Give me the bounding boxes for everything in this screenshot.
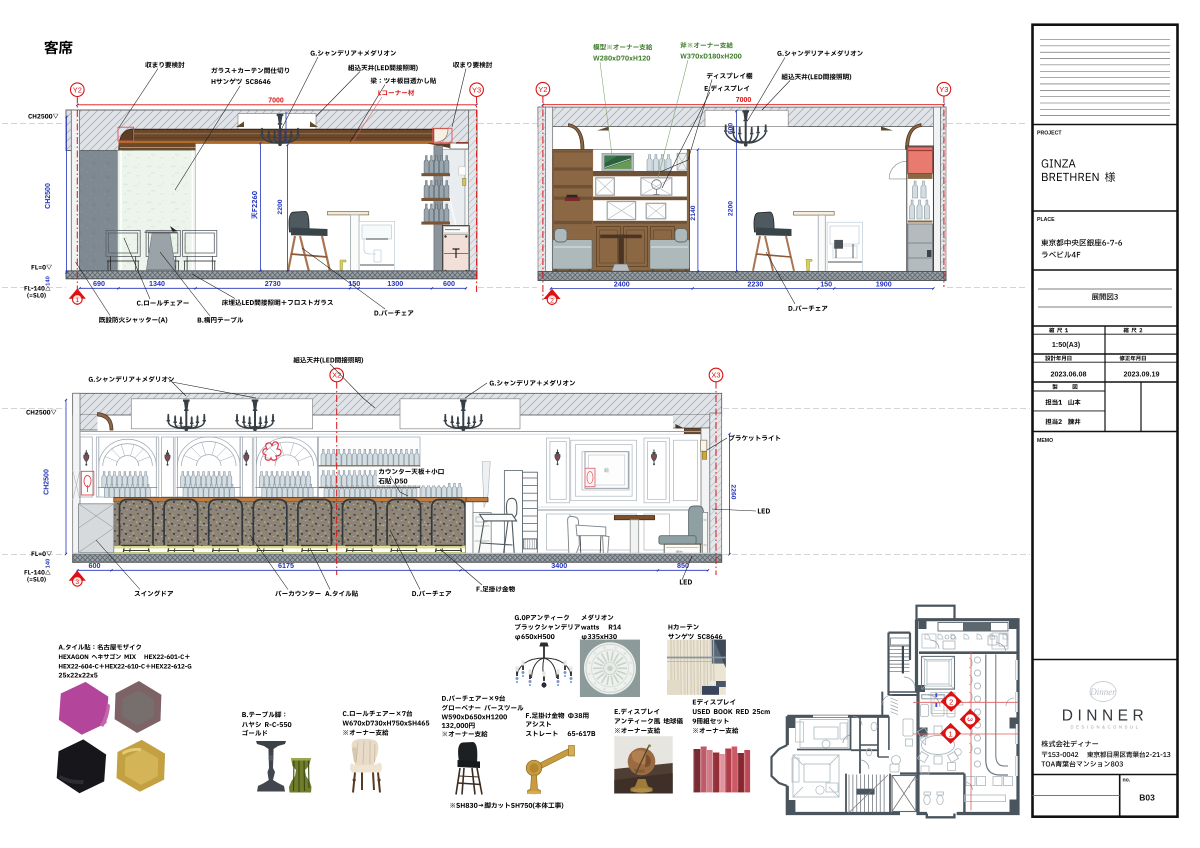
svg-text:3: 3 [965, 717, 974, 721]
svg-text:Y2: Y2 [73, 85, 82, 94]
svg-text:1: 1 [75, 297, 79, 304]
svg-text:1900: 1900 [876, 279, 892, 288]
svg-text:Y3: Y3 [472, 85, 481, 94]
svg-text:PROJECT: PROJECT [1037, 131, 1062, 137]
svg-text:Dinner: Dinner [1089, 687, 1116, 697]
svg-text:no.: no. [1123, 778, 1131, 784]
svg-text:600: 600 [89, 561, 101, 570]
svg-text:DINNER: DINNER [1062, 708, 1148, 725]
svg-text:7000: 7000 [736, 97, 752, 104]
svg-text:2: 2 [550, 297, 554, 304]
svg-text:Y3: Y3 [939, 85, 948, 94]
svg-text:600: 600 [277, 129, 284, 141]
svg-text:1:50(A3): 1:50(A3) [1052, 340, 1081, 349]
svg-text:2023.06.08: 2023.06.08 [1051, 370, 1087, 379]
svg-text:3400: 3400 [551, 561, 567, 570]
svg-text:2260: 2260 [729, 484, 736, 499]
svg-text:1340: 1340 [149, 279, 165, 288]
svg-text:7000: 7000 [268, 97, 284, 104]
svg-text:600: 600 [443, 279, 455, 288]
svg-text:600: 600 [728, 123, 735, 135]
svg-text:1: 1 [949, 729, 953, 738]
svg-text:B03: B03 [1139, 793, 1155, 803]
svg-text:140: 140 [46, 276, 52, 286]
svg-text:DESIGN&CONSUL: DESIGN&CONSUL [1070, 725, 1140, 730]
svg-text:2: 2 [949, 697, 953, 706]
svg-text:CH2500: CH2500 [44, 469, 51, 495]
svg-text:6175: 6175 [278, 561, 294, 570]
svg-text:X3: X3 [711, 371, 720, 380]
svg-text:2230: 2230 [747, 279, 763, 288]
svg-text:140: 140 [46, 559, 52, 569]
svg-text:MEMO: MEMO [1037, 438, 1053, 444]
svg-text:PLACE: PLACE [1037, 217, 1055, 223]
svg-text:3: 3 [75, 579, 79, 586]
svg-text:2730: 2730 [265, 279, 281, 288]
svg-text:2200: 2200 [277, 199, 284, 214]
svg-text:2023.09.19: 2023.09.19 [1124, 370, 1160, 379]
svg-text:Y2: Y2 [538, 85, 547, 94]
svg-text:CH2500: CH2500 [45, 183, 52, 209]
svg-text:690: 690 [93, 279, 105, 288]
svg-text:X2: X2 [332, 371, 341, 380]
svg-text:2140: 2140 [690, 205, 697, 220]
svg-text:150: 150 [820, 279, 832, 288]
svg-text:850: 850 [677, 561, 689, 570]
svg-text:1300: 1300 [387, 279, 403, 288]
svg-text:2200: 2200 [728, 201, 735, 216]
svg-text:2400: 2400 [614, 279, 630, 288]
